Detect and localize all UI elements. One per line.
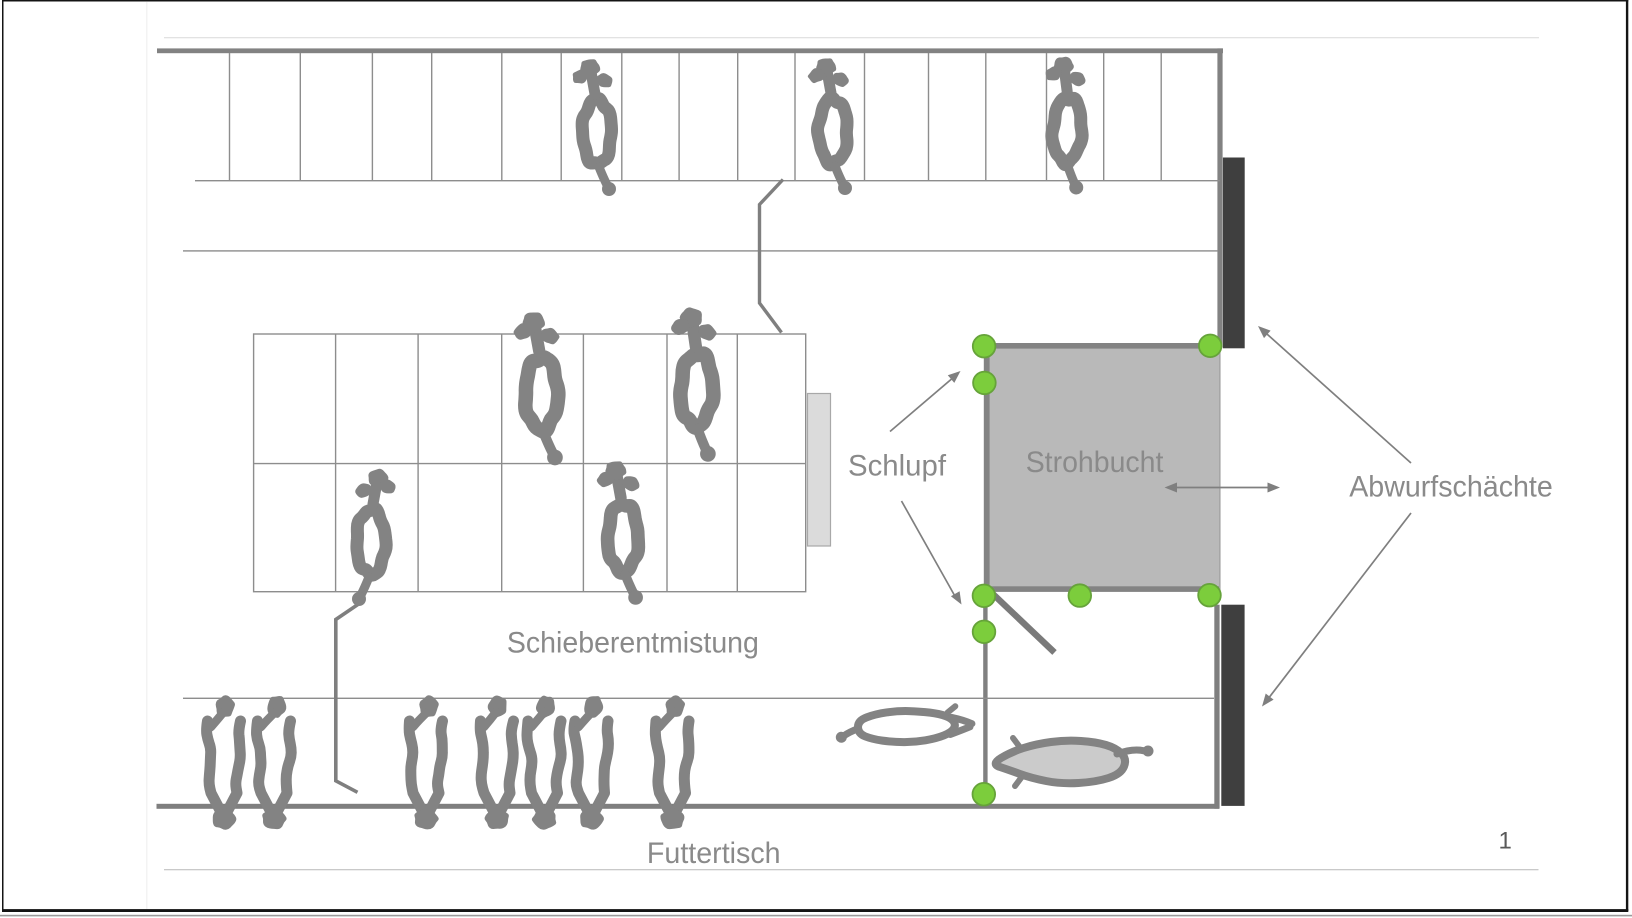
svg-text:Futtertisch: Futtertisch [647, 837, 781, 870]
svg-text:Abwurfschächte: Abwurfschächte [1349, 471, 1553, 504]
svg-text:Schieberentmistung: Schieberentmistung [507, 627, 759, 660]
svg-text:1: 1 [1499, 828, 1512, 855]
svg-text:Strohbucht: Strohbucht [1026, 446, 1164, 479]
svg-text:Schlupf: Schlupf [848, 450, 947, 483]
